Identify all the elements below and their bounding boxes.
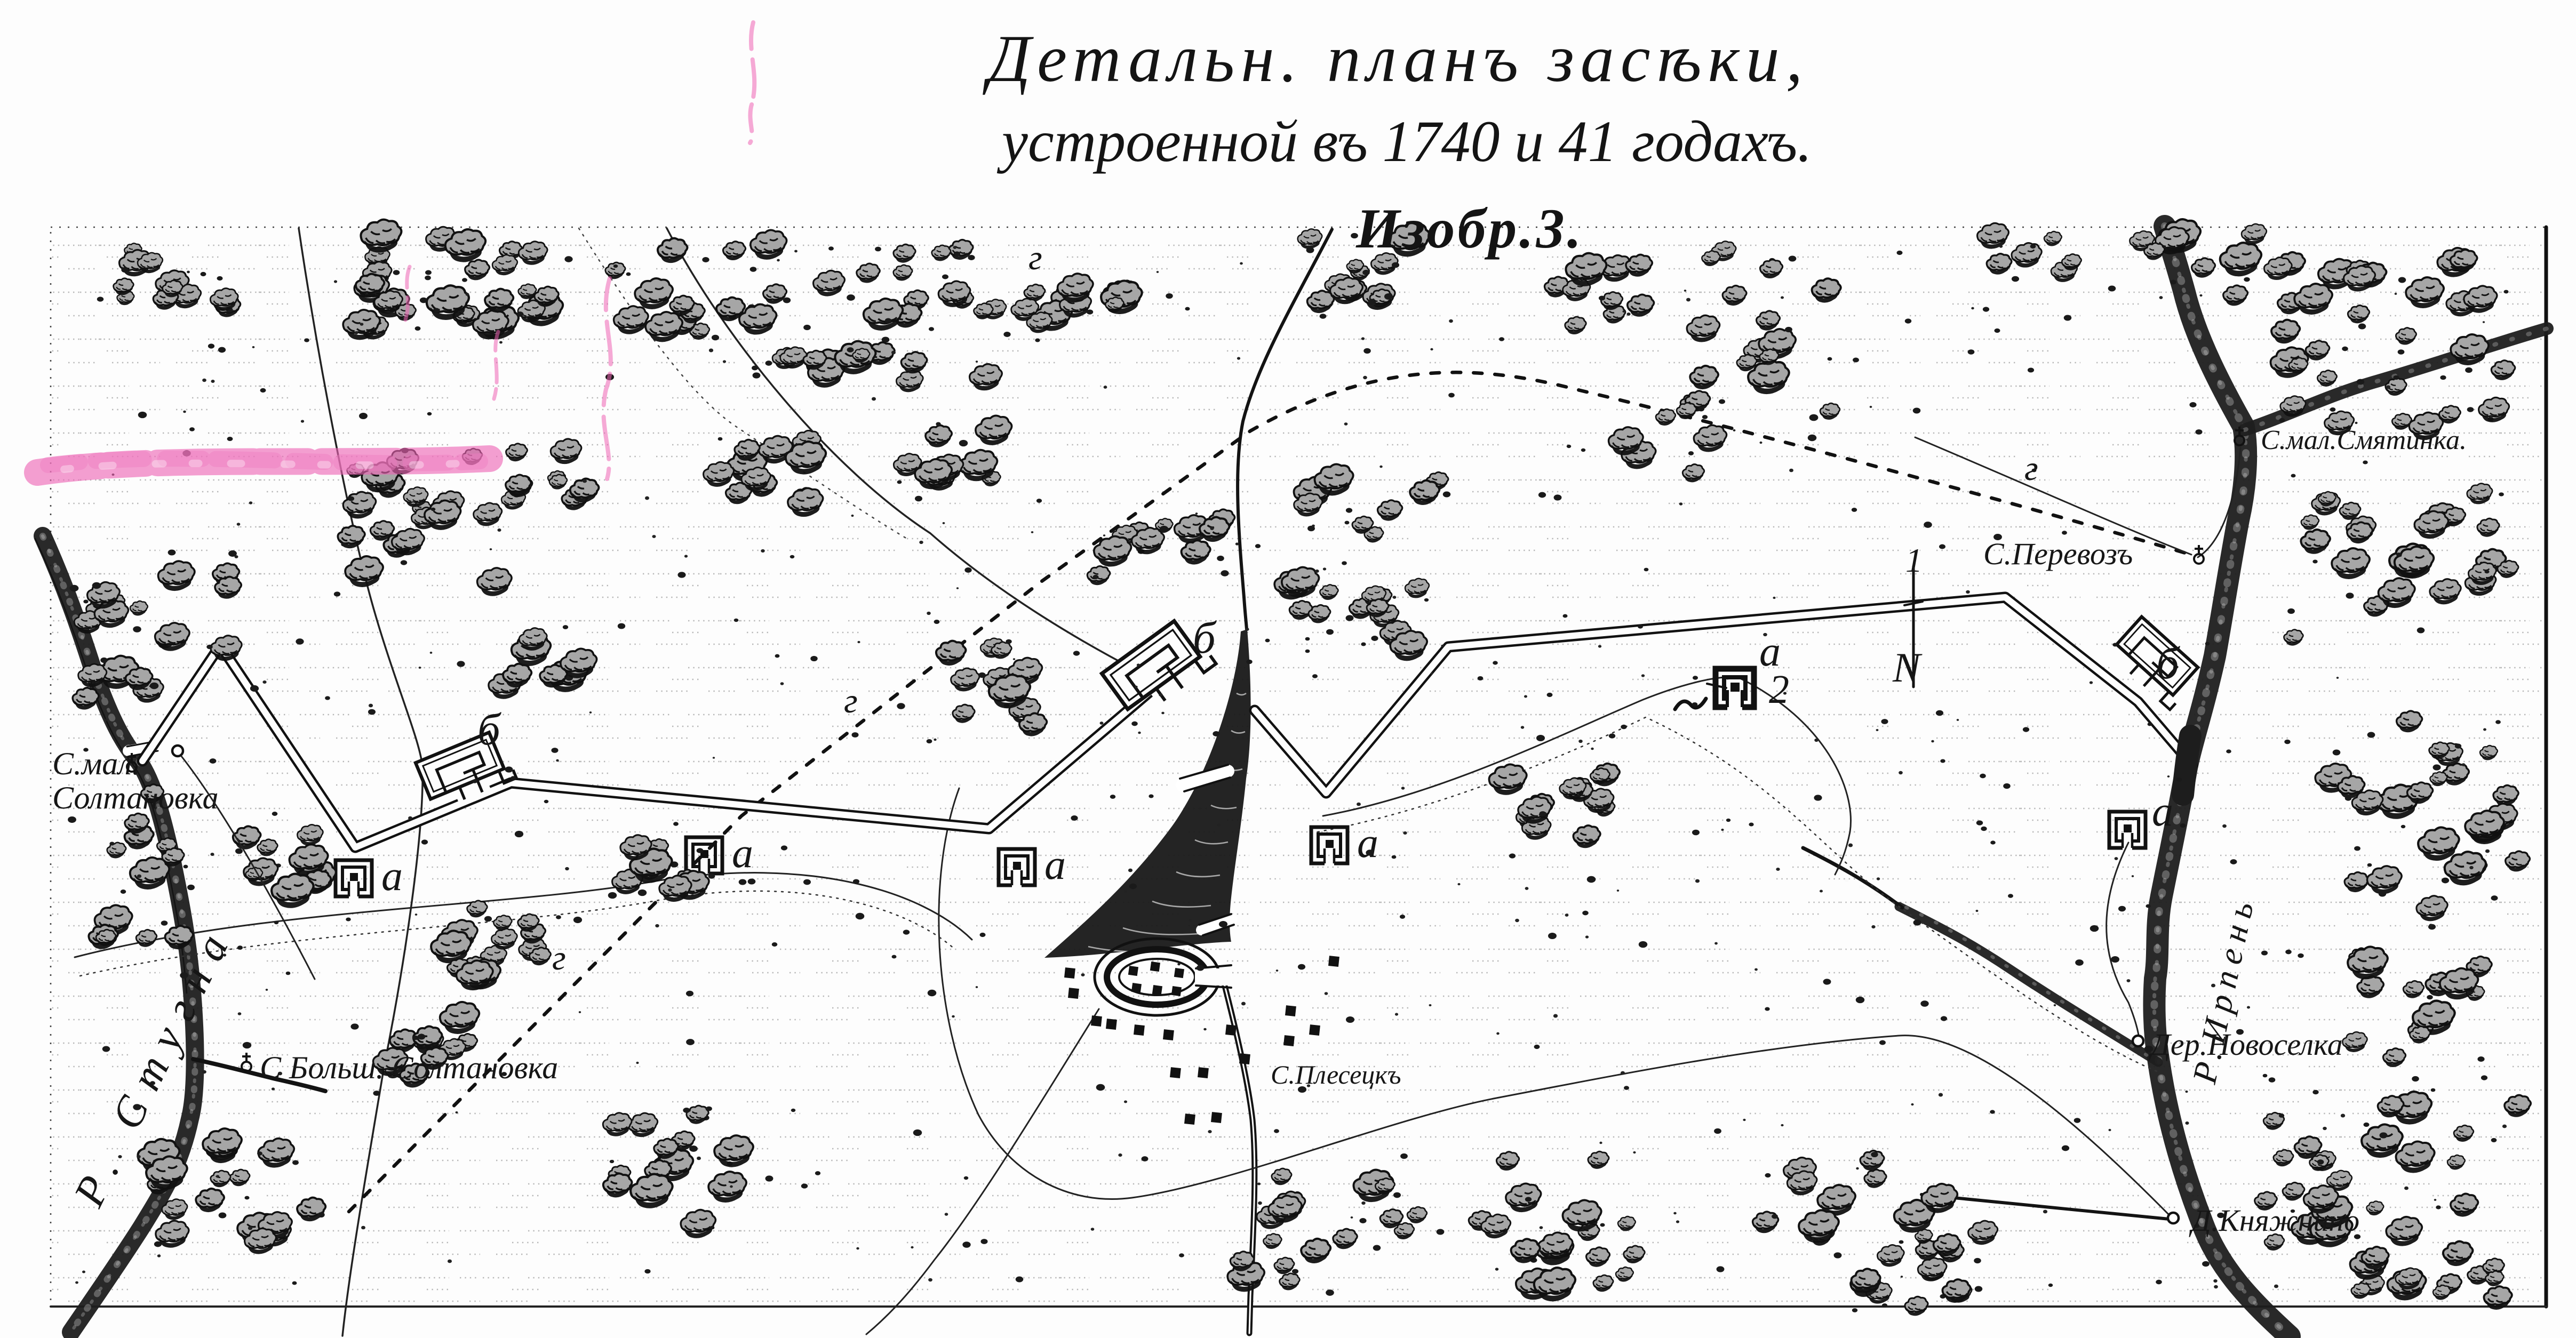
svg-text:Д.Княжнино: Д.Княжнино	[2189, 1203, 2359, 1238]
svg-text:а: а	[1357, 820, 1378, 867]
svg-text:Дер.Новоселка: Дер.Новоселка	[2148, 1027, 2343, 1062]
svg-text:устроенной въ 1740 и 41 годахъ: устроенной въ 1740 и 41 годахъ.	[996, 109, 1812, 174]
svg-text:С Больш. Солтановка: С Больш. Солтановка	[260, 1050, 558, 1085]
svg-text:б: б	[477, 704, 502, 755]
svg-text:г: г	[552, 939, 566, 978]
svg-text:С.Перевозъ: С.Перевозъ	[1983, 536, 2133, 571]
svg-text:г: г	[2024, 449, 2038, 488]
svg-text:2: 2	[1769, 667, 1789, 712]
svg-text:1: 1	[1905, 541, 1923, 579]
svg-text:а: а	[1044, 842, 1066, 888]
svg-text:Детальн. планъ засѣки,: Детальн. планъ засѣки,	[983, 22, 1809, 96]
svg-text:г: г	[844, 682, 858, 720]
svg-text:С.мал.Смятинка.: С.мал.Смятинка.	[2261, 425, 2467, 455]
svg-text:Изобр.3.: Изобр.3.	[1355, 197, 1584, 260]
svg-text:г: г	[1028, 238, 1042, 277]
svg-text:б: б	[1193, 613, 1217, 663]
svg-text:Солтановка: Солтановка	[52, 780, 219, 815]
svg-text:а: а	[381, 853, 403, 900]
svg-text:С.Плесецкъ: С.Плесецкъ	[1271, 1060, 1401, 1089]
svg-text:а: а	[2152, 788, 2173, 835]
svg-text:а: а	[732, 830, 753, 877]
svg-text:б: б	[2156, 638, 2181, 688]
svg-text:N: N	[1892, 644, 1923, 691]
